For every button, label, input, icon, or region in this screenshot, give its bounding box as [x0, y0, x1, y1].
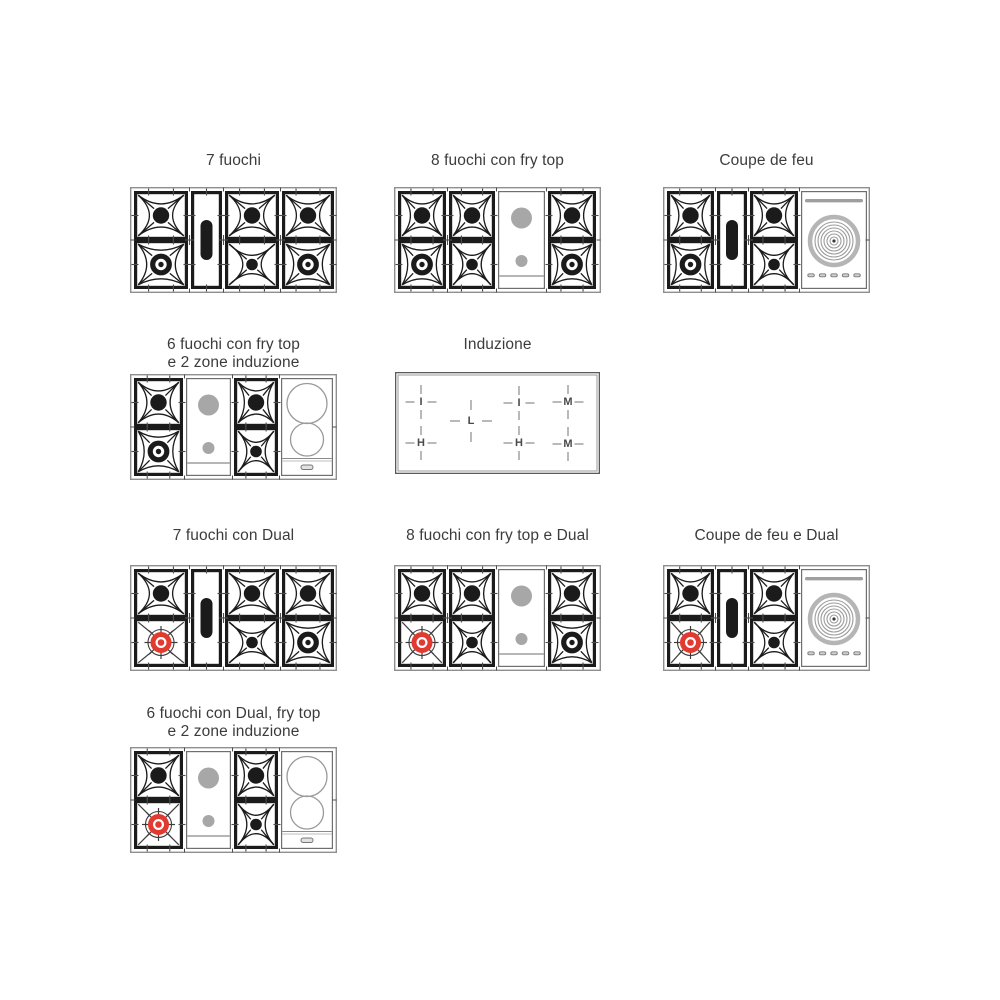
small-burner — [232, 425, 281, 479]
coupe-vent-dash — [854, 274, 861, 277]
coupe-de-feu-panel — [802, 192, 867, 289]
small-burner-cap — [466, 637, 478, 649]
fry-top-panel — [187, 752, 231, 849]
dual-burner-center — [419, 639, 426, 646]
8-fuochi-con-fry-top-cooktop-diagram — [394, 187, 601, 293]
7-fuochi-cooktop-diagram — [130, 187, 337, 293]
fry-top-border — [499, 192, 545, 289]
large-burner — [447, 189, 498, 243]
6-fuochi-fry-top-induzione-cooktop-diagram — [130, 374, 337, 480]
large-burner — [132, 567, 191, 621]
coupe-center-dot — [832, 617, 835, 620]
oval-burner-capsule — [201, 598, 213, 638]
large-burner — [396, 189, 449, 243]
induction-zone-label: M — [563, 438, 572, 450]
large-burner-cap — [682, 207, 698, 223]
induction-2-zone-panel — [282, 379, 333, 476]
large-burner — [396, 567, 449, 621]
induction-control-button — [301, 838, 313, 843]
ring-burner-center — [569, 640, 574, 645]
fry-top-large-zone — [198, 395, 219, 416]
large-burner-cap — [414, 585, 430, 601]
large-burner — [447, 567, 498, 621]
title-6-fuochi-dual-fry-top-induzione: 6 fuochi con Dual, fry top e 2 zone indu… — [74, 705, 394, 741]
large-burner — [132, 749, 186, 803]
large-burner-cap — [300, 207, 316, 223]
large-burner-cap — [153, 207, 169, 223]
8-fuochi-fry-top-dual-cooktop-diagram — [394, 565, 601, 671]
coupe-vent-dash — [831, 652, 838, 655]
large-burner-cap — [464, 207, 480, 223]
fry-top-border — [187, 379, 231, 476]
small-burner-cap — [768, 259, 780, 271]
coupe-top-bar — [805, 199, 863, 202]
small-burner-cap — [250, 819, 262, 831]
fry-top-small-zone — [516, 255, 528, 267]
induction-zone-label: I — [419, 396, 422, 408]
coupe-vent-dash — [819, 652, 826, 655]
large-burner — [132, 189, 191, 243]
large-burner-cap — [414, 207, 430, 223]
ring-burner — [396, 238, 449, 292]
ring-burner-center — [158, 262, 163, 267]
induction-cooktop-frame — [396, 373, 600, 474]
dual-burner-center — [687, 639, 694, 646]
induction-zone-label: H — [417, 437, 425, 449]
fry-top-large-zone — [198, 768, 219, 789]
large-burner-cap — [564, 585, 580, 601]
ring-burner — [280, 616, 337, 670]
coupe-vent-dash — [808, 274, 815, 277]
small-burner — [447, 616, 498, 670]
large-burner — [223, 567, 282, 621]
small-burner — [748, 238, 801, 292]
dual-burner-center — [158, 639, 165, 646]
coupe-vent-dash — [831, 274, 838, 277]
ring-burner — [546, 616, 599, 670]
large-burner — [546, 189, 599, 243]
large-burner-cap — [150, 767, 166, 783]
large-burner-cap — [150, 394, 166, 410]
large-burner — [223, 189, 282, 243]
large-burner — [546, 567, 599, 621]
large-burner — [665, 567, 717, 621]
7-fuochi-con-dual-cooktop-diagram — [130, 565, 337, 671]
large-burner-cap — [300, 585, 316, 601]
ring-burner — [546, 238, 599, 292]
fry-top-border — [499, 570, 545, 667]
induction-zone-label: M — [563, 396, 572, 408]
fry-top-panel — [499, 570, 545, 667]
small-burner-cap — [250, 446, 262, 458]
small-burner — [232, 798, 281, 852]
small-burner-cap — [768, 637, 780, 649]
fry-top-panel — [187, 379, 231, 476]
dual-burner-center — [155, 821, 162, 828]
large-burner-cap — [682, 585, 698, 601]
induction-zone-label: I — [517, 397, 520, 409]
coupe-de-feu-panel — [802, 570, 867, 667]
large-burner — [280, 189, 337, 243]
coupe-vent-dash — [842, 652, 849, 655]
large-burner — [132, 376, 186, 430]
large-burner-cap — [564, 207, 580, 223]
induction-2-zone-panel — [282, 752, 333, 849]
fry-top-large-zone — [511, 586, 532, 607]
fry-top-small-zone — [203, 442, 215, 454]
cooktop-configurations-sheet: 7 fuochi8 fuochi con fry topCoupe de feu… — [0, 0, 1000, 1000]
small-burner — [223, 616, 282, 670]
large-burner — [748, 567, 801, 621]
small-burner-cap — [466, 259, 478, 271]
ring-burner-center — [156, 449, 161, 454]
fry-top-small-zone — [516, 633, 528, 645]
induzione-cooktop-diagram: ILIMHHM — [395, 372, 600, 474]
coupe-center-dot — [832, 239, 835, 242]
ring-burner-center — [305, 262, 310, 267]
large-burner-cap — [464, 585, 480, 601]
ring-burner-center — [569, 262, 574, 267]
coupe-top-bar — [805, 577, 863, 580]
large-burner-cap — [244, 207, 260, 223]
6-fuochi-dual-fry-top-induzione-cooktop-diagram — [130, 747, 337, 853]
ring-burner — [132, 238, 191, 292]
dual-burner — [396, 616, 449, 670]
ring-burner-center — [305, 640, 310, 645]
ring-burner-center — [419, 262, 424, 267]
coupe-vent-dash — [819, 274, 826, 277]
large-burner-cap — [766, 207, 782, 223]
small-burner — [748, 616, 801, 670]
large-burner — [665, 189, 717, 243]
large-burner — [280, 567, 337, 621]
dual-burner — [132, 798, 186, 852]
coupe-de-feu-e-dual-cooktop-diagram — [663, 565, 870, 671]
small-burner — [223, 238, 282, 292]
title-coupe-de-feu: Coupe de feu — [607, 152, 927, 170]
ring-burner-center — [688, 262, 693, 267]
large-burner-cap — [766, 585, 782, 601]
induction-control-button — [301, 465, 313, 470]
large-burner-cap — [244, 585, 260, 601]
large-burner — [232, 749, 281, 803]
fry-top-large-zone — [511, 208, 532, 229]
coupe-vent-dash — [842, 274, 849, 277]
ring-burner — [132, 425, 186, 479]
fry-top-panel — [499, 192, 545, 289]
ring-burner — [665, 238, 717, 292]
induction-zone-label: H — [515, 437, 523, 449]
large-burner — [232, 376, 281, 430]
dual-burner — [132, 616, 191, 670]
fry-top-border — [187, 752, 231, 849]
coupe-vent-dash — [808, 652, 815, 655]
large-burner-cap — [248, 394, 264, 410]
ring-burner — [280, 238, 337, 292]
large-burner — [748, 189, 801, 243]
coupe-vent-dash — [854, 652, 861, 655]
title-induzione: Induzione — [338, 336, 658, 354]
title-coupe-de-feu-e-dual: Coupe de feu e Dual — [607, 527, 927, 545]
oval-burner-capsule — [201, 220, 213, 260]
fry-top-small-zone — [203, 815, 215, 827]
coupe-de-feu-cooktop-diagram — [663, 187, 870, 293]
large-burner-cap — [248, 767, 264, 783]
oval-burner-capsule — [726, 598, 738, 638]
induction-zone-label: L — [468, 415, 475, 427]
small-burner-cap — [246, 637, 258, 649]
dual-burner — [665, 616, 717, 670]
small-burner-cap — [246, 259, 258, 271]
large-burner-cap — [153, 585, 169, 601]
small-burner — [447, 238, 498, 292]
oval-burner-capsule — [726, 220, 738, 260]
